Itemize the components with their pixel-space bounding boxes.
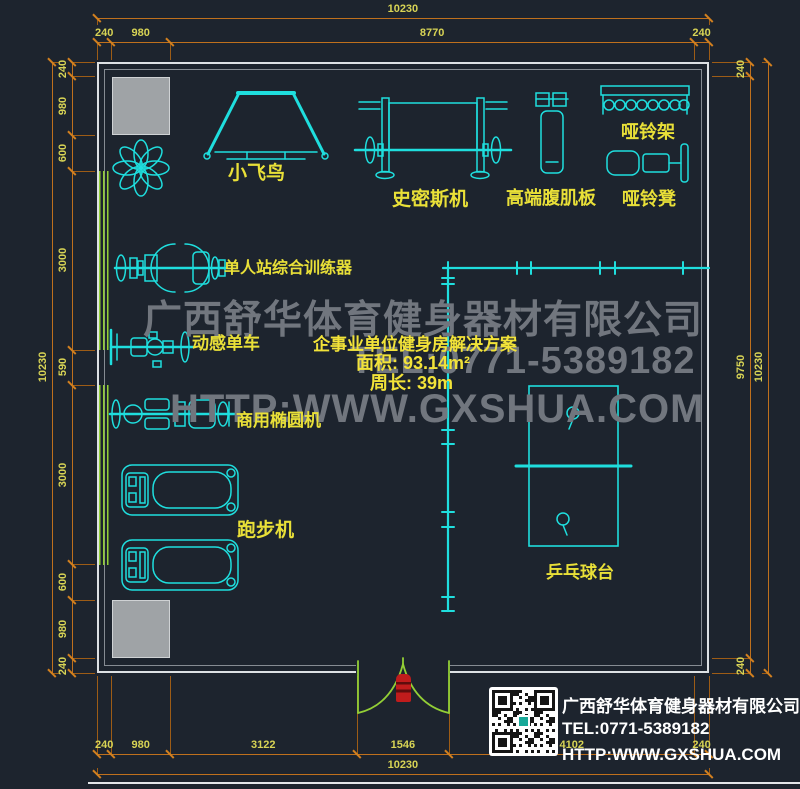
dim-value: 10230 <box>388 759 419 771</box>
label-spin-bike: 动感单车 <box>192 329 260 354</box>
dumbbell-bench-drawing <box>607 144 688 182</box>
label-treadmill: 跑步机 <box>237 515 294 542</box>
dim-value: 240 <box>57 656 69 674</box>
dim-value: 240 <box>735 60 747 78</box>
dim-value: 240 <box>735 656 747 674</box>
dim-value: 980 <box>57 96 69 114</box>
smith-machine-drawing <box>355 98 511 179</box>
dim-value: 10230 <box>37 352 49 383</box>
dim-value: 590 <box>57 358 69 376</box>
dim-value: 240 <box>95 27 113 39</box>
label-butterfly-machine: 小飞鸟 <box>228 158 285 185</box>
dim-value: 980 <box>57 620 69 638</box>
treadmill-drawing-1 <box>122 465 238 515</box>
dim-value: 240 <box>692 27 710 39</box>
dim-value: 1546 <box>391 739 415 751</box>
dim-value: 980 <box>131 27 149 39</box>
plant-symbol <box>113 140 169 196</box>
logo-tel: TEL:0771-5389182 <box>562 719 709 739</box>
dim-value: 3000 <box>57 462 69 486</box>
dumbbell-rack-drawing <box>601 86 689 114</box>
dim-value: 240 <box>95 739 113 751</box>
qr-code <box>489 687 558 756</box>
label-dumbbell-bench: 哑铃凳 <box>622 185 676 211</box>
label-ping-pong-table: 乒乓球台 <box>546 558 614 583</box>
butterfly-machine-drawing <box>204 93 328 159</box>
floor-plan: 广西舒华体育健身器材有限公司 TEL:0771-5389182 HTTP:WWW… <box>0 0 800 789</box>
dim-value: 600 <box>57 573 69 591</box>
label-ab-board: 高端腹肌板 <box>506 184 596 210</box>
door-marker <box>396 674 411 702</box>
logo-company: 广西舒华体育健身器材有限公司 <box>562 692 800 717</box>
label-commercial-elliptical: 商用椭圆机 <box>236 406 321 431</box>
label-dumbbell-rack: 哑铃架 <box>621 118 675 144</box>
treadmill-drawing-2 <box>122 540 238 590</box>
dim-value: 980 <box>131 739 149 751</box>
logo-web: HTTP:WWW.GXSHUA.COM <box>562 745 781 765</box>
dim-value: 3122 <box>251 739 275 751</box>
label-smith-machine: 史密斯机 <box>392 184 468 211</box>
single-station-trainer-drawing <box>115 244 225 292</box>
dim-value: 600 <box>57 144 69 162</box>
label-single-station-trainer: 单人站综合训练器 <box>224 254 352 278</box>
dim-value: 10230 <box>388 3 419 15</box>
title-block-rule <box>88 782 800 784</box>
dim-value: 10230 <box>753 352 765 383</box>
plan-perimeter: 周长: 39m <box>370 369 453 395</box>
ab-board-drawing <box>536 93 568 173</box>
dim-value: 8770 <box>420 27 444 39</box>
dim-value: 240 <box>57 60 69 78</box>
dim-value: 3000 <box>57 248 69 272</box>
dim-value: 9750 <box>735 355 747 379</box>
